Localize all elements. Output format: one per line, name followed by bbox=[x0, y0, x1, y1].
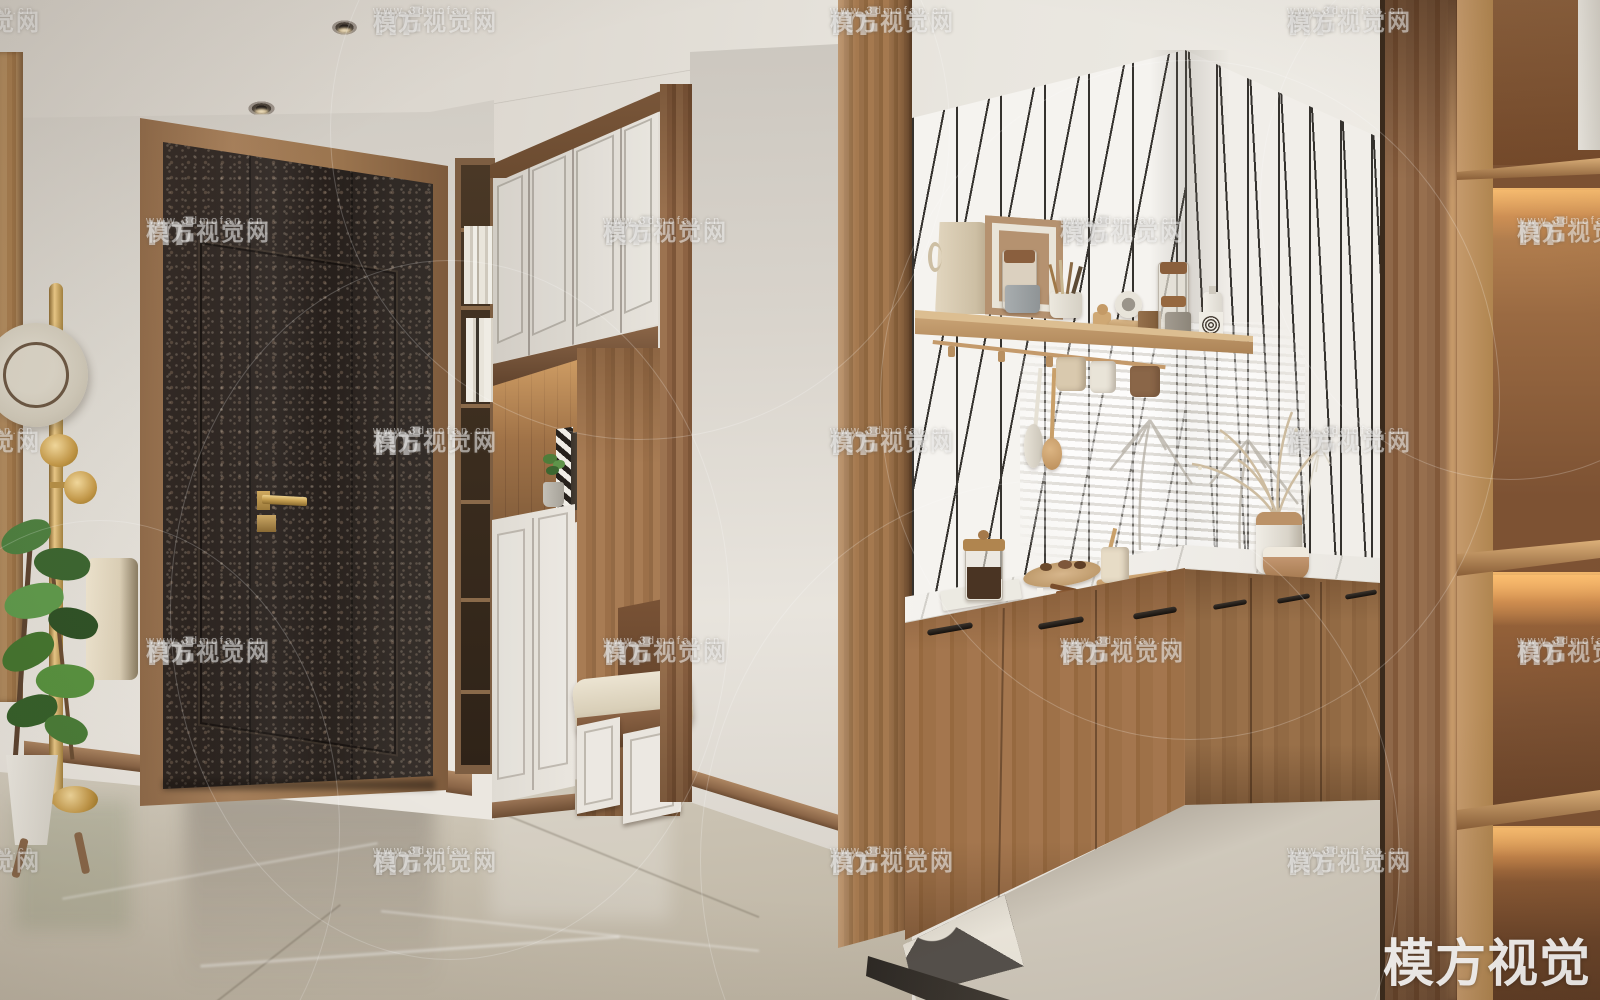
pitcher-handle bbox=[928, 242, 942, 272]
rail-peg bbox=[948, 346, 955, 357]
dried-plant-fronds bbox=[1180, 398, 1320, 523]
spiral-print bbox=[1202, 316, 1220, 334]
cabinet-door-panel bbox=[532, 155, 566, 336]
hat-band bbox=[0, 337, 74, 412]
bottle-cap bbox=[1209, 286, 1216, 294]
white-panel-sliver bbox=[1578, 0, 1600, 150]
cabinet-seam bbox=[1320, 582, 1322, 804]
jar-lid bbox=[963, 539, 1005, 551]
coffee-mug bbox=[1101, 547, 1129, 583]
right-unit-pillar bbox=[1385, 0, 1457, 1000]
utensil-cup bbox=[1050, 292, 1082, 318]
niche-shelf bbox=[461, 690, 490, 694]
cabinet-door-seam bbox=[528, 157, 530, 357]
cabinet-door-panel bbox=[576, 134, 614, 327]
pillar-led-edge bbox=[1448, 0, 1457, 1000]
sugar-cube bbox=[1037, 588, 1043, 594]
niche-shelf bbox=[461, 404, 490, 408]
cabinet-door-panel bbox=[497, 175, 523, 344]
brass-disc bbox=[40, 434, 78, 467]
jar-contents bbox=[967, 567, 1001, 599]
white-ladle bbox=[1024, 424, 1043, 468]
cabinet-door-panel bbox=[497, 529, 525, 780]
snack bbox=[1058, 560, 1072, 569]
snack bbox=[1040, 563, 1052, 571]
ceiling-spotlight bbox=[328, 18, 361, 37]
led-glow bbox=[1493, 572, 1600, 626]
jar-knob bbox=[978, 530, 989, 540]
door-lock-plate bbox=[257, 515, 276, 532]
baseboard bbox=[446, 770, 472, 796]
entry-door bbox=[163, 140, 433, 792]
cabinet-door-seam bbox=[572, 138, 574, 346]
divider-wall bbox=[690, 40, 838, 852]
stand-base-disc bbox=[52, 786, 98, 813]
right-unit-jamb bbox=[1457, 0, 1493, 1000]
pillar-shading bbox=[1385, 0, 1457, 1000]
unit-niche bbox=[1493, 190, 1600, 550]
hanging-mug bbox=[1090, 361, 1116, 393]
led-glow bbox=[1493, 826, 1600, 882]
door-sheen bbox=[163, 140, 433, 792]
books bbox=[464, 226, 493, 304]
unit-side-pillar bbox=[660, 84, 692, 802]
wood-knob bbox=[1097, 304, 1108, 315]
rail-peg bbox=[1046, 356, 1053, 367]
snack bbox=[1074, 561, 1086, 569]
cabinet-seam bbox=[1250, 578, 1252, 806]
pillar-shading bbox=[660, 84, 692, 802]
spotlight-glint bbox=[336, 27, 353, 35]
ceramic-bowl bbox=[1263, 547, 1309, 580]
led-glow bbox=[1493, 188, 1600, 240]
vase-neck-band bbox=[1256, 512, 1302, 525]
hanging-mug bbox=[1056, 357, 1086, 391]
interior-render: m∶模方视觉网www.3dmofan.cnm∶模方视觉网www.3dmofan.… bbox=[0, 0, 1600, 1000]
books bbox=[466, 318, 493, 402]
grey-mug bbox=[1005, 285, 1040, 313]
hanging-mug bbox=[1130, 366, 1160, 397]
niche-shelf bbox=[461, 598, 490, 602]
drawer-panel bbox=[584, 725, 613, 805]
brass-wall-bracket bbox=[64, 471, 97, 504]
niche-plant-pot bbox=[543, 482, 564, 507]
cabinet-door-seam bbox=[532, 518, 534, 790]
canister-band bbox=[1161, 296, 1186, 307]
corner-wood-beam bbox=[838, 0, 912, 952]
cabinet-door-panel bbox=[538, 512, 568, 770]
niche-shelf bbox=[461, 500, 490, 504]
cabinet-door-seam bbox=[620, 117, 622, 334]
leaf bbox=[546, 466, 559, 475]
canister-lid bbox=[1160, 262, 1187, 274]
bench-drawer bbox=[577, 717, 620, 814]
niche-shelf bbox=[461, 306, 490, 310]
cabinet-door-panel bbox=[624, 118, 652, 314]
spotlight-glint bbox=[253, 108, 271, 116]
beam-shading bbox=[838, 0, 912, 952]
rail-peg bbox=[998, 351, 1005, 362]
door-floor-reflection bbox=[185, 790, 435, 990]
wooden-spoon bbox=[1042, 438, 1062, 470]
door-threshold-shadow bbox=[163, 780, 435, 790]
cabinet-seam bbox=[1095, 590, 1097, 880]
jar-wood-lid bbox=[1004, 250, 1035, 263]
